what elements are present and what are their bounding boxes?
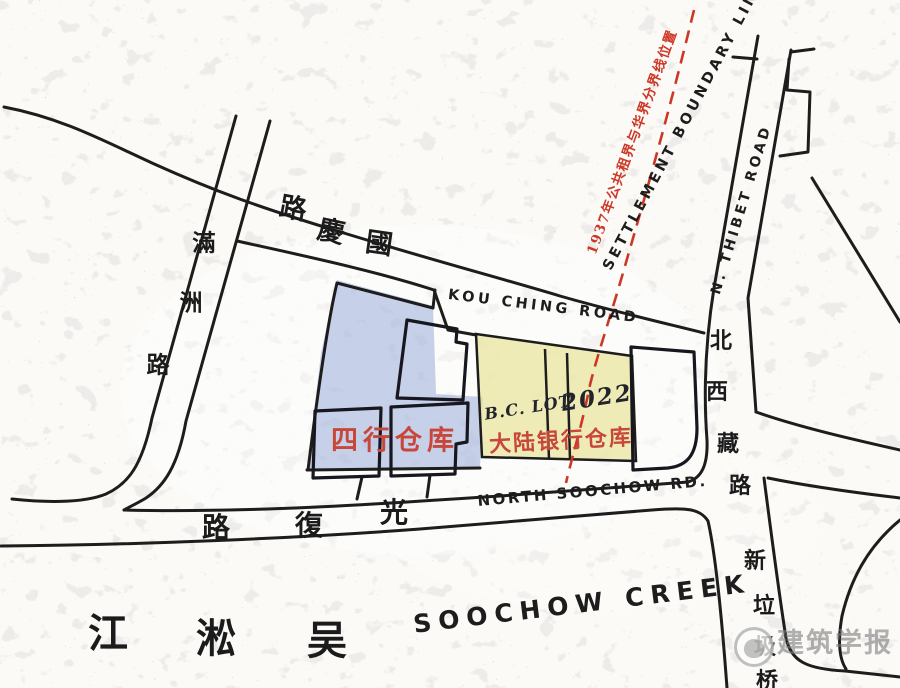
guangfu-char-lu: 路 — [202, 514, 230, 542]
creek-char-wu: 吴 — [307, 621, 347, 661]
journal-logo-blob — [744, 639, 764, 658]
manchuria-char-zhou: 洲 — [180, 292, 203, 315]
guangfu-char-guang: 光 — [380, 499, 408, 527]
guoqing-char-lu: 路 — [277, 193, 308, 224]
map-canvas: 1937年公共租界与华界分界线位置 SETTLEMENT BOUNDARY LI… — [0, 0, 900, 688]
tibet-char-lu: 路 — [729, 475, 751, 497]
watermark-text: 建筑学报 — [777, 630, 893, 657]
corner-building — [631, 347, 697, 470]
bridge-char-qiao: 桥 — [756, 670, 778, 688]
guoqing-char-guo: 國 — [364, 229, 394, 259]
creek-char-jiang: 江 — [88, 614, 128, 654]
map-line-art — [0, 0, 900, 688]
creek-char-song: 淞 — [196, 619, 236, 659]
guoqing-char-qing: 慶 — [315, 216, 347, 248]
east-branch-north-line — [756, 412, 900, 450]
manchuria-char-man: 滿 — [193, 232, 216, 255]
northeast-diagonal-line — [812, 178, 900, 322]
tibet-char-xi: 西 — [706, 381, 728, 403]
bridge-char-xin: 新 — [744, 550, 766, 572]
bridge-char-la: 垃 — [753, 595, 775, 617]
tibet-char-zang: 藏 — [717, 433, 739, 455]
sihang-warehouse-label: 四行仓库 — [331, 428, 459, 455]
journal-logo-icon — [734, 627, 774, 667]
manchuria-char-lu: 路 — [147, 354, 170, 377]
tibet-char-bei: 北 — [710, 330, 732, 352]
thibet-road-east-line — [748, 50, 791, 412]
guangfu-char-fu: 復 — [295, 512, 323, 540]
east-branch-south-line — [768, 478, 900, 498]
dalu-warehouse-label: 大陆银行仓库 — [489, 426, 634, 456]
